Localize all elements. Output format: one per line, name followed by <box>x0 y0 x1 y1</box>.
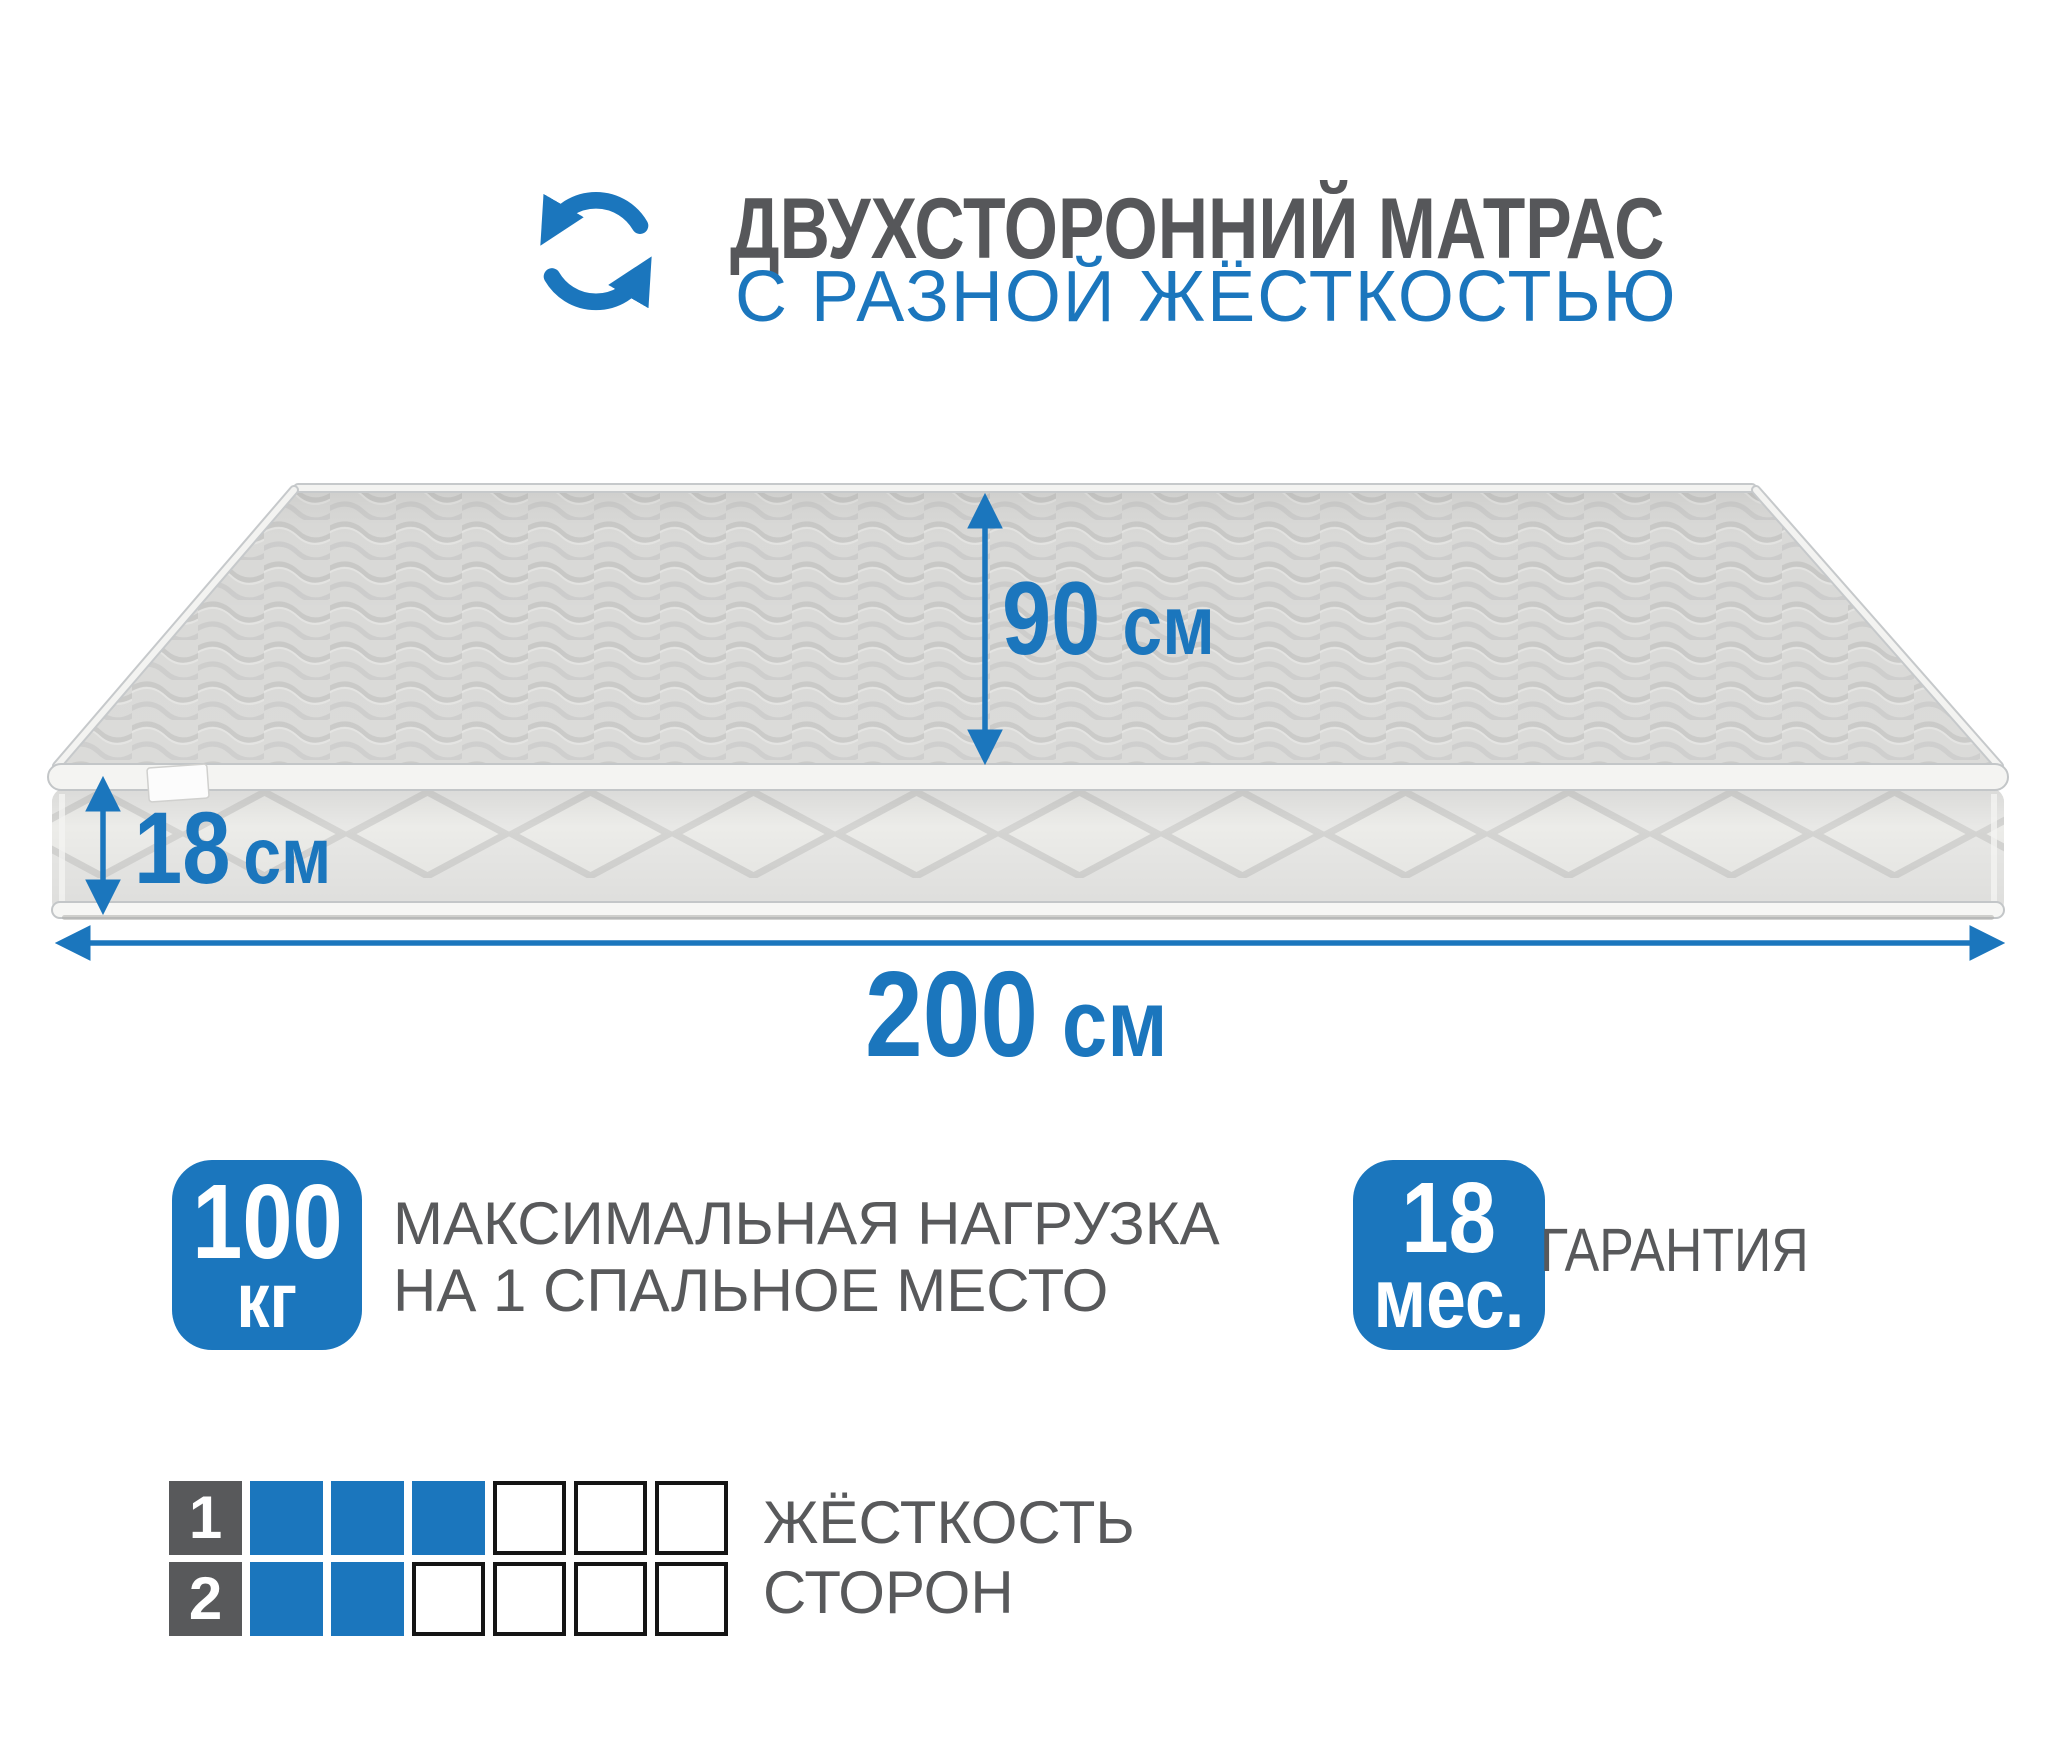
warranty-badge: 18 мес. <box>1353 1160 1545 1350</box>
width-unit: см <box>1122 577 1215 674</box>
mattress-side-face <box>52 788 2004 920</box>
firmness-side-label: 2 <box>169 1562 242 1636</box>
firmness-side-label: 1 <box>169 1481 242 1555</box>
width-dimension-label: 90 см <box>1002 567 1215 674</box>
firmness-row-side-2: 2 <box>169 1562 728 1636</box>
max-load-label-line2: НА 1 СПАЛЬНОЕ МЕСТО <box>393 1257 1220 1324</box>
firmness-label: ЖЁСТКОСТЬ СТОРОН <box>763 1488 1135 1628</box>
firmness-cell-filled <box>250 1481 323 1555</box>
warranty-label: ГАРАНТИЯ <box>1540 1220 1809 1281</box>
infographic-canvas: ДВУХСТОРОННИЙ МАТРАС С РАЗНОЙ ЖЁСТКОСТЬЮ <box>0 0 2048 1757</box>
length-value: 200 <box>865 953 1038 1075</box>
length-dimension-label: 200 см <box>865 953 1168 1079</box>
height-value: 18 <box>134 797 230 899</box>
max-load-label-line1: МАКСИМАЛЬНАЯ НАГРУЗКА <box>393 1190 1220 1257</box>
firmness-label-line1: ЖЁСТКОСТЬ <box>763 1488 1135 1558</box>
firmness-cell-empty <box>574 1562 647 1636</box>
firmness-cell-empty <box>412 1562 485 1636</box>
max-load-badge: 100 кг <box>172 1160 362 1350</box>
length-unit: см <box>1062 969 1168 1079</box>
warranty-unit: мес. <box>1373 1256 1524 1340</box>
firmness-cell-empty <box>655 1481 728 1555</box>
rotate-arrows-icon <box>508 180 684 328</box>
firmness-cell-empty <box>574 1481 647 1555</box>
firmness-cell-filled <box>412 1481 485 1555</box>
firmness-row-side-1: 1 <box>169 1481 728 1555</box>
firmness-cell-filled <box>250 1562 323 1636</box>
firmness-cell-empty <box>655 1562 728 1636</box>
firmness-cell-empty <box>493 1562 566 1636</box>
firmness-label-line2: СТОРОН <box>763 1558 1135 1628</box>
firmness-cell-filled <box>331 1481 404 1555</box>
height-dimension-label: 18 см <box>134 797 331 902</box>
max-load-unit: кг <box>237 1261 298 1339</box>
height-unit: см <box>243 810 331 902</box>
width-value: 90 <box>1002 567 1100 671</box>
page-subtitle: С РАЗНОЙ ЖЁСТКОСТЬЮ <box>735 261 1678 333</box>
max-load-label: МАКСИМАЛЬНАЯ НАГРУЗКА НА 1 СПАЛЬНОЕ МЕСТ… <box>393 1190 1220 1324</box>
firmness-cell-filled <box>331 1562 404 1636</box>
firmness-cell-empty <box>493 1481 566 1555</box>
